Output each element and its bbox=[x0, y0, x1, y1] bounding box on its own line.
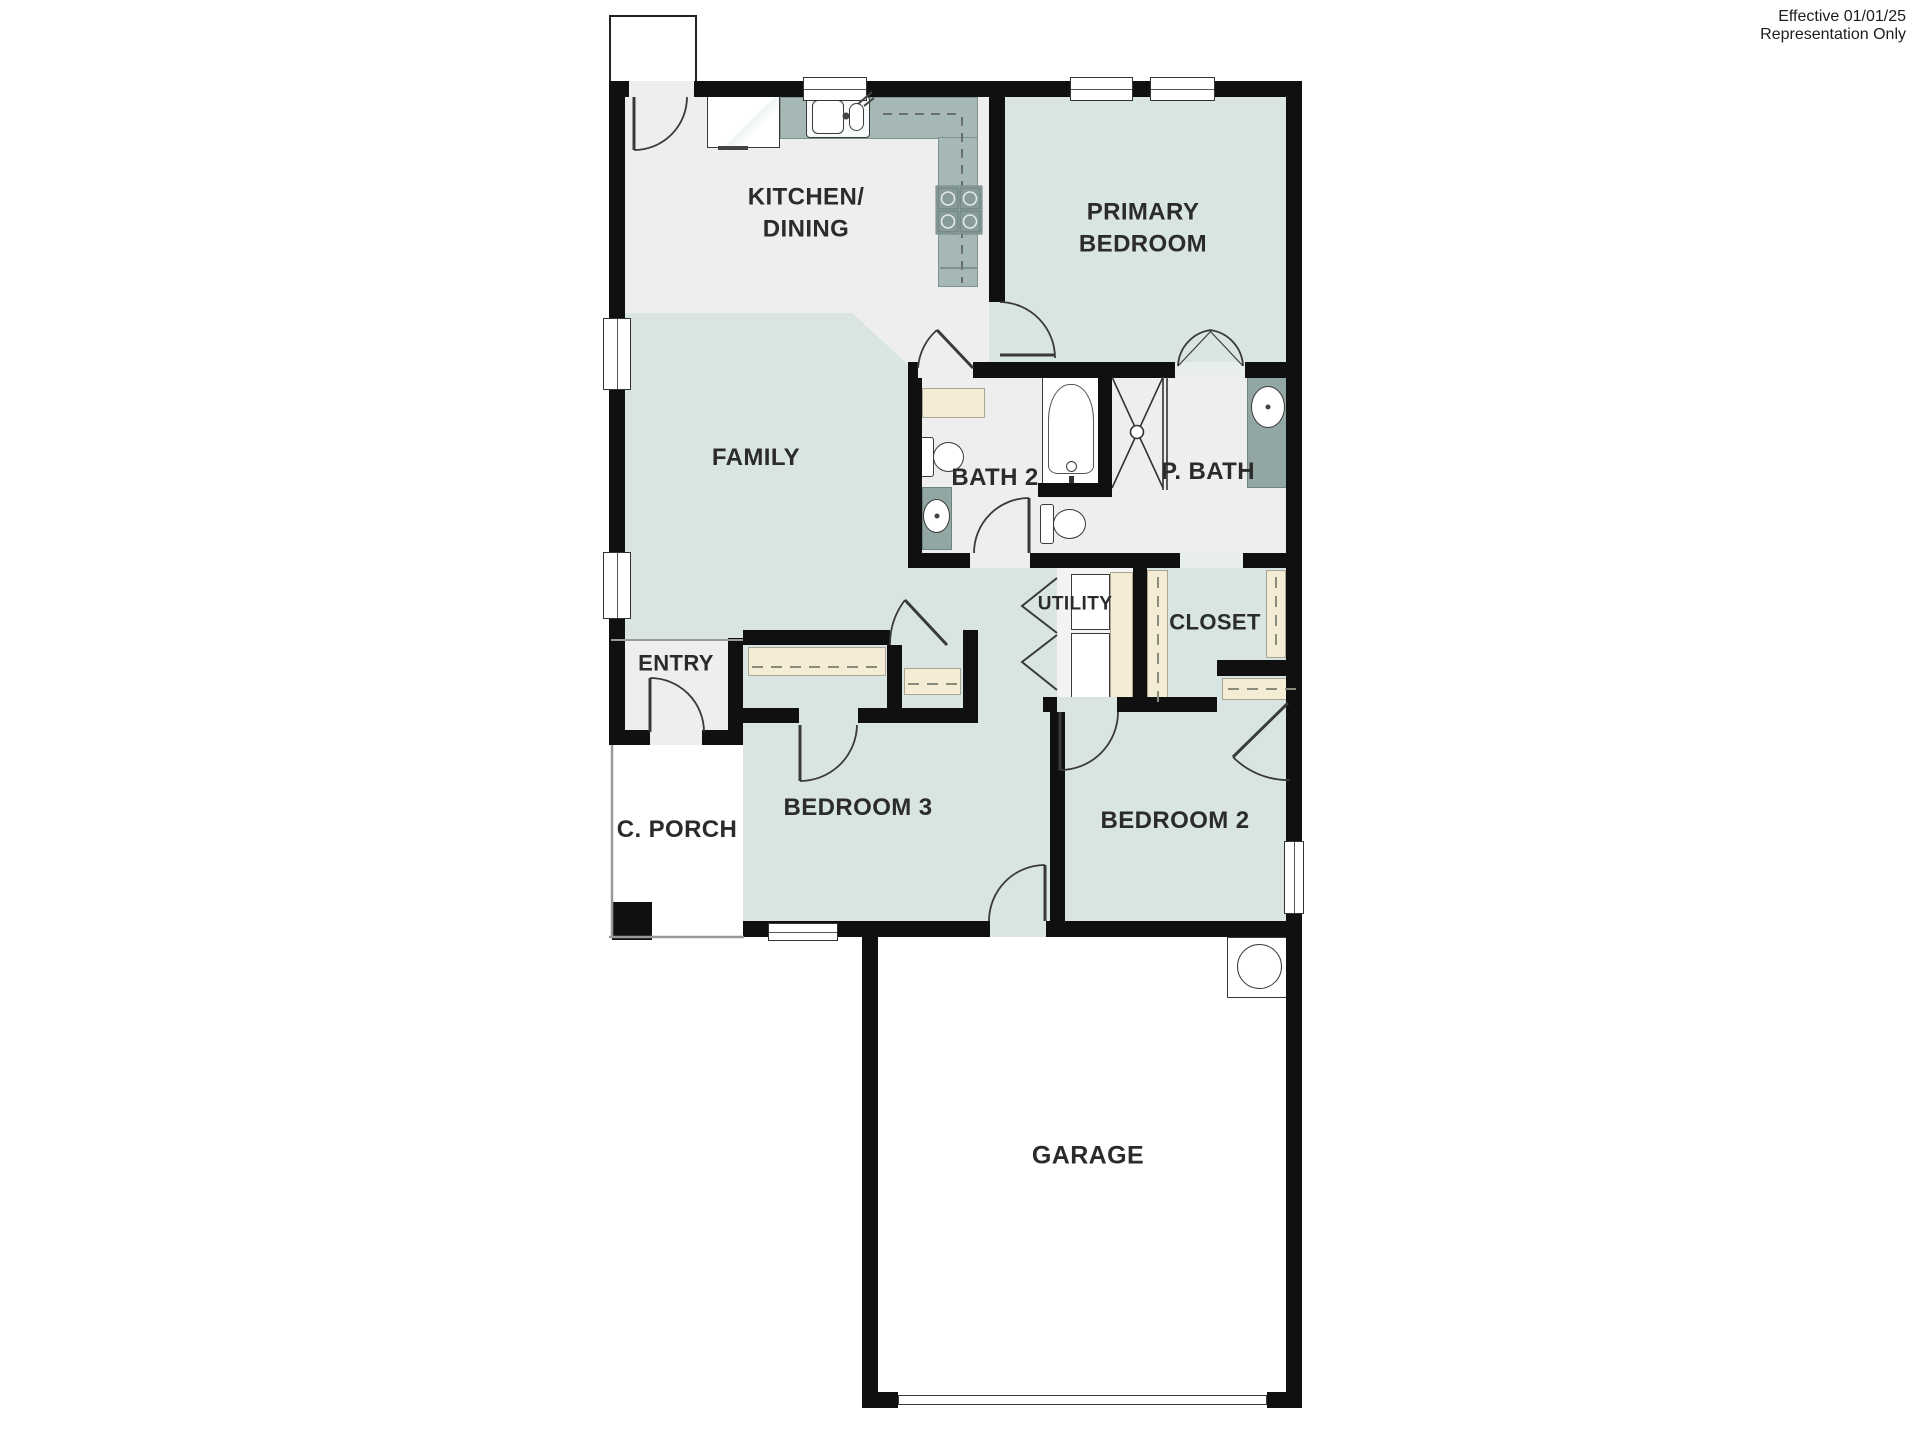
room-label-utility: UTILITY bbox=[1038, 591, 1113, 616]
closet-rod-dashes bbox=[752, 577, 1296, 705]
room-label-cporch: C. PORCH bbox=[617, 814, 738, 846]
room-label-entry: ENTRY bbox=[638, 648, 714, 677]
plan-annotation: Effective 01/01/25 Representation Only bbox=[1760, 8, 1906, 45]
room-label-garage: GARAGE bbox=[1032, 1140, 1144, 1173]
room-label-bedroom3: BEDROOM 3 bbox=[784, 792, 933, 824]
room-label-family: FAMILY bbox=[712, 442, 800, 474]
plan-annotation-line1: Effective 01/01/25 bbox=[1760, 8, 1906, 26]
plan-annotation-line2: Representation Only bbox=[1760, 26, 1906, 44]
stove bbox=[936, 186, 982, 234]
linework-overlay bbox=[0, 0, 1920, 1440]
floor-plan: KITCHEN/ DINING PRIMARY BEDROOM FAMILY B… bbox=[0, 0, 1920, 1440]
room-label-primary: PRIMARY BEDROOM bbox=[1079, 196, 1207, 259]
room-label-bedroom2: BEDROOM 2 bbox=[1101, 805, 1250, 837]
room-label-pbath: P. BATH bbox=[1161, 456, 1255, 488]
room-label-closet: CLOSET bbox=[1169, 607, 1261, 636]
room-label-kitchen: KITCHEN/ DINING bbox=[748, 181, 865, 244]
kitchen-faucet bbox=[844, 92, 875, 119]
room-label-bath2: BATH 2 bbox=[951, 462, 1038, 494]
shower bbox=[1112, 377, 1167, 490]
